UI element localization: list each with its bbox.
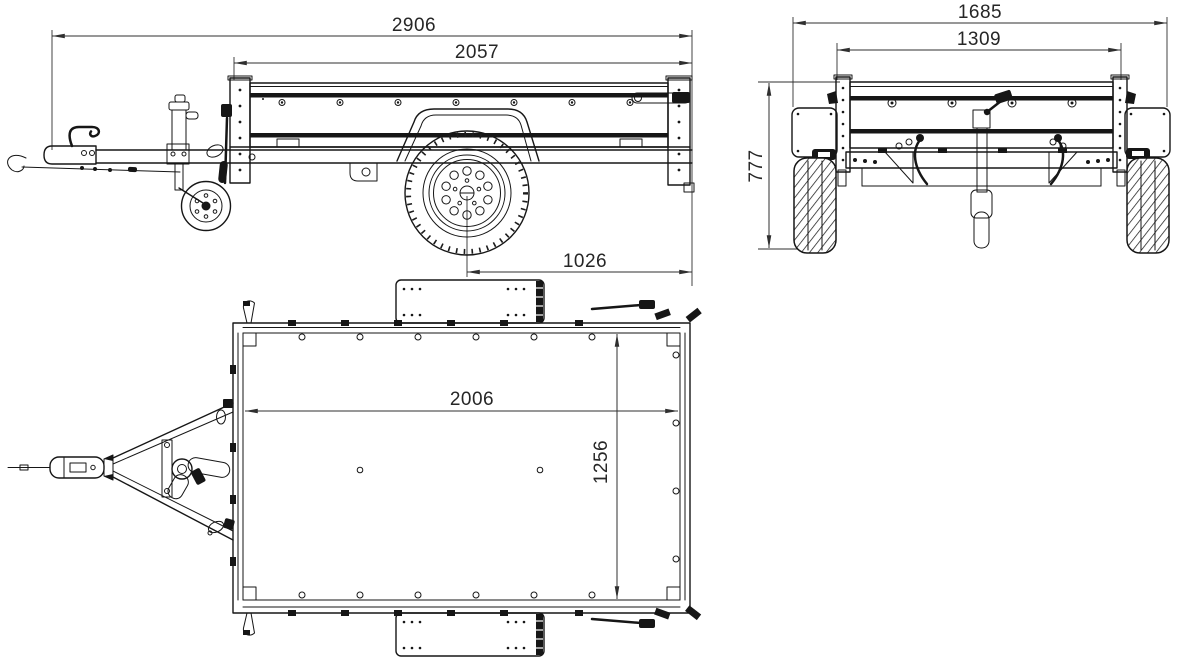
corner-latch-rear-left [243, 613, 255, 635]
mudguard-top-lower [396, 613, 544, 656]
side-dim-axle-to-rear: 1026 [467, 196, 692, 277]
mudguard-rear-right [1125, 108, 1170, 159]
wheel-rear-right [1127, 158, 1169, 253]
top-dim-inner-length: 2006 [245, 389, 678, 411]
front-corner-post [228, 76, 255, 183]
corner-latch-rear-right [592, 605, 701, 628]
mudguard-top-upper [396, 280, 544, 323]
tie-rail-slot-rear [620, 139, 642, 147]
corner-post-front-left [243, 333, 256, 346]
rear-dim-overall-width: 1685 [793, 2, 1167, 107]
tie-rail-slot-front [277, 139, 299, 147]
jockey-wheel-rear [971, 89, 1013, 248]
sidewall-rivets [262, 98, 633, 106]
dim-label-axle-to-rear: 1026 [563, 251, 607, 272]
rear-dim-box-width: 1309 [837, 29, 1121, 80]
top-drawbar [104, 403, 233, 540]
tip-latch-lever-left [896, 134, 927, 184]
dim-label-overall-length: 2906 [392, 15, 436, 36]
dim-label-inner-width: 1256 [591, 440, 612, 484]
wall-hinge-marks [230, 320, 583, 616]
mudguard-rear-left [792, 108, 837, 160]
side-dim-box-length: 2057 [234, 42, 692, 80]
floor-rivet-2 [537, 467, 543, 473]
top-jockey-wheel [165, 456, 230, 501]
corner-latch-front-left [243, 301, 255, 323]
rear-chassis [838, 134, 1125, 186]
dim-label-overall-width: 1685 [958, 2, 1002, 23]
lower-rail [250, 133, 668, 138]
corner-latch-front-right [592, 300, 702, 322]
rear-body [827, 75, 1136, 172]
top-view: 2006 1256 [8, 280, 702, 656]
tipping-latch-front [205, 104, 232, 183]
dim-label-height: 777 [746, 149, 767, 182]
side-box-body [228, 76, 694, 192]
top-box-walls [230, 320, 690, 616]
wall-rivets [299, 334, 679, 598]
frame-support-bracket [350, 163, 377, 181]
floor-rivet-1 [357, 467, 363, 473]
trailer-drawing-canvas: 2906 2057 1026 [0, 0, 1182, 667]
dim-label-box-width: 1309 [957, 29, 1001, 50]
coupling-handle [70, 127, 99, 146]
corner-post-rear-left [243, 587, 256, 600]
corner-post-rear-right [667, 587, 680, 600]
upper-rail [250, 93, 668, 98]
dim-label-box-length: 2057 [455, 42, 499, 63]
side-view: 2906 2057 1026 [8, 15, 694, 286]
dim-label-inner-length: 2006 [450, 389, 494, 410]
top-coupling [8, 457, 104, 478]
tip-latch-lever-right [1050, 134, 1066, 184]
corner-post-front-right [667, 333, 680, 346]
top-wall-latch-upper [217, 399, 234, 424]
top-dim-inner-width: 1256 [591, 334, 617, 599]
rear-view: 1685 1309 777 [746, 2, 1170, 253]
wheel-rear-left [794, 158, 836, 253]
technical-drawing-page: 2906 2057 1026 [0, 0, 1182, 667]
